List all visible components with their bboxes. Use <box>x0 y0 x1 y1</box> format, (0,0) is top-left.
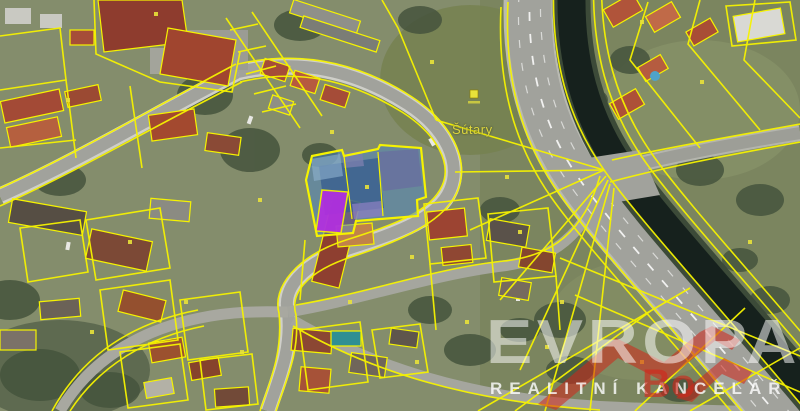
watermark-subtitle: REALITNÍ KANCELÁŘ <box>490 380 788 397</box>
place-label: Šútary <box>452 122 493 137</box>
watermark-logo-text: Bo <box>642 364 695 404</box>
aerial-cadastral-map[interactable]: Šútary EVROPA REALITNÍ KANCELÁŘ Bo <box>0 0 800 411</box>
